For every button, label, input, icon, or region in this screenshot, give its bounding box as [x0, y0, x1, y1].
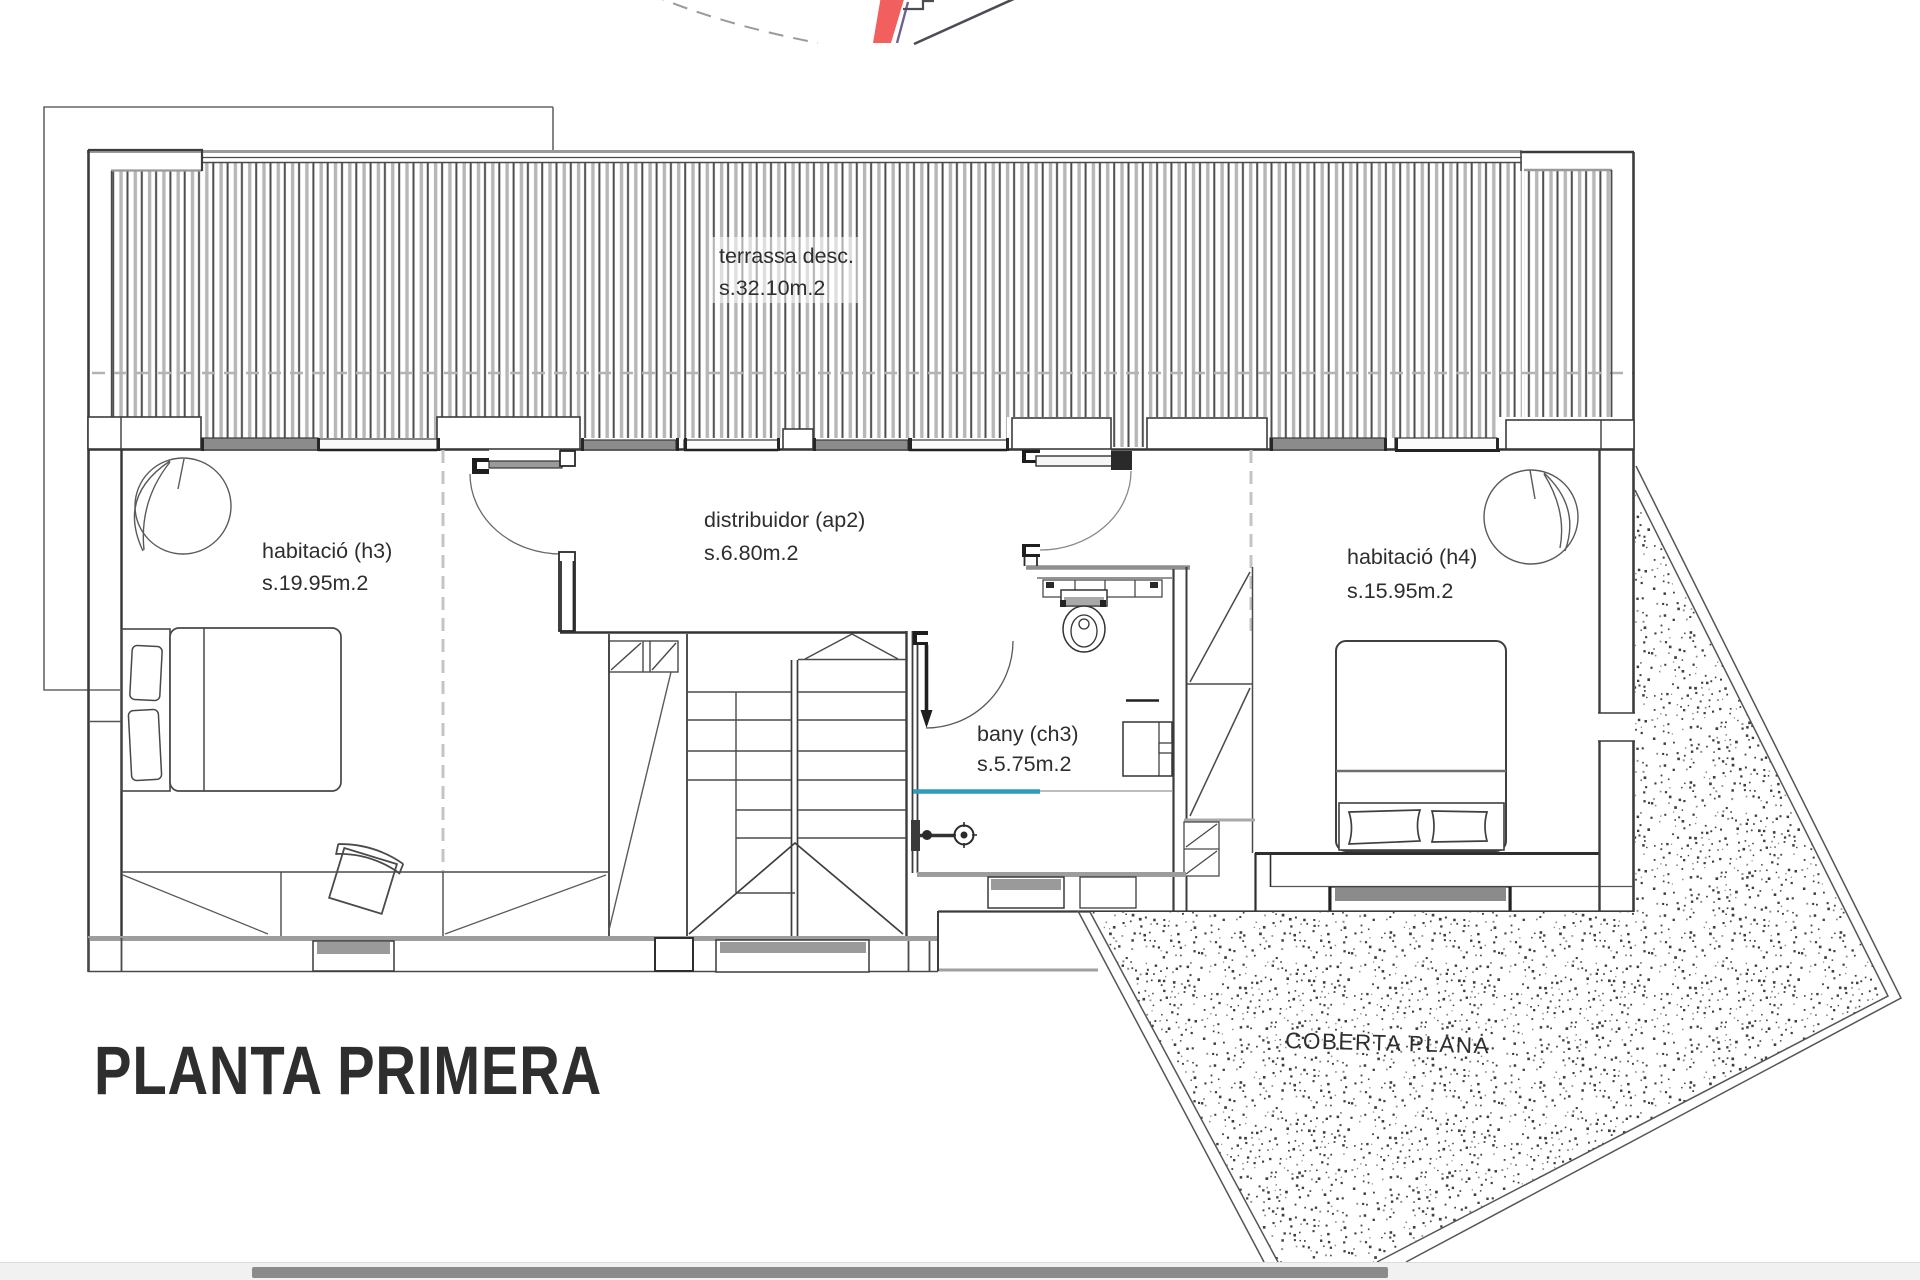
- svg-text:s.19.95m.2: s.19.95m.2: [262, 571, 368, 595]
- svg-text:distribuidor (ap2): distribuidor (ap2): [704, 508, 865, 532]
- svg-text:habitació (h4): habitació (h4): [1347, 545, 1477, 569]
- svg-text:bany (ch3): bany (ch3): [977, 722, 1079, 746]
- svg-text:terrassa desc.: terrassa desc.: [719, 244, 854, 268]
- svg-text:s.32.10m.2: s.32.10m.2: [719, 276, 825, 300]
- svg-text:s.6.80m.2: s.6.80m.2: [704, 541, 798, 565]
- svg-text:PLANTA PRIMERA: PLANTA PRIMERA: [94, 1033, 602, 1110]
- svg-text:habitació (h3): habitació (h3): [262, 539, 392, 563]
- svg-text:s.15.95m.2: s.15.95m.2: [1347, 579, 1453, 603]
- svg-text:s.5.75m.2: s.5.75m.2: [977, 752, 1071, 776]
